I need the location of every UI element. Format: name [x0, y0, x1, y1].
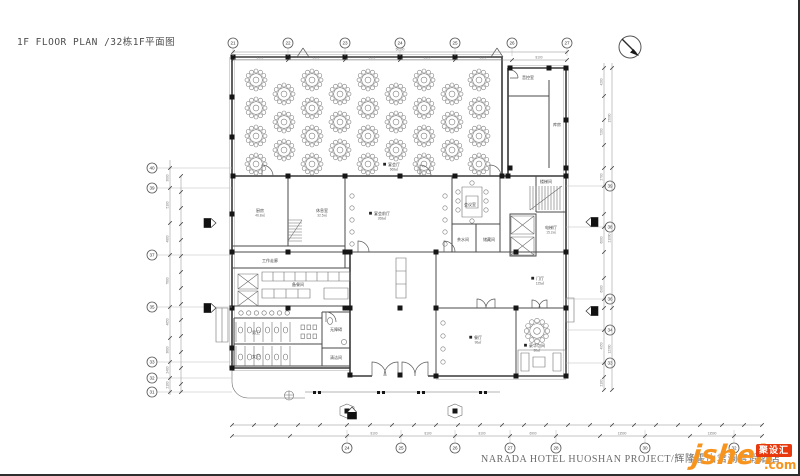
grid-bubble: 32: [147, 373, 232, 383]
svg-text:楼梯间: 楼梯间: [540, 178, 552, 184]
svg-text:668㎡: 668㎡: [390, 167, 399, 172]
section-marker: [586, 218, 598, 227]
chair: [470, 181, 474, 185]
banquet-table: [413, 69, 435, 91]
section-marker: [586, 307, 598, 316]
column: [230, 250, 235, 255]
column: [508, 66, 513, 71]
column: [230, 95, 235, 100]
column: [348, 306, 353, 311]
column: [286, 174, 291, 179]
chair: [443, 230, 447, 234]
banquet-tables-layer: [245, 69, 550, 344]
room-label: 厨房46.8㎡: [255, 207, 265, 218]
svg-text:餐厅: 餐厅: [474, 334, 482, 340]
grid-bubble: 33: [566, 358, 615, 368]
svg-text:2700: 2700: [600, 173, 604, 180]
svg-text:宴会前厅: 宴会前厅: [374, 210, 390, 216]
room-label: 餐厅96㎡: [469, 334, 482, 345]
banquet-table: [413, 125, 435, 147]
chair: [441, 347, 445, 351]
grid-bubble: 25: [396, 430, 406, 453]
banquet-table: [273, 83, 295, 105]
column: [434, 250, 439, 255]
grid-bubble: 21: [228, 38, 238, 56]
room-labels-layer: 宴会厅668㎡音控室库房厨房46.8㎡休息室32.5㎡宴会前厅268㎡会议室茶水…: [252, 74, 561, 360]
svg-text:茶水间: 茶水间: [457, 236, 469, 242]
banquet-table: [273, 111, 295, 133]
svg-text:5100: 5100: [166, 201, 170, 208]
room-label: 楼梯间: [540, 178, 552, 184]
column: [398, 174, 403, 179]
svg-text:女卫: 女卫: [252, 353, 260, 359]
banquet-table: [413, 153, 435, 175]
svg-text:268㎡: 268㎡: [378, 216, 387, 221]
svg-text:3600: 3600: [166, 346, 170, 353]
chair: [350, 242, 354, 246]
column: [398, 306, 403, 311]
svg-text:21: 21: [230, 41, 236, 46]
banquet-table: [441, 83, 463, 105]
svg-text:2100: 2100: [166, 381, 170, 388]
svg-text:4650: 4650: [166, 318, 170, 325]
room-label: 豪华包间80㎡: [524, 342, 545, 353]
fixtures-layer: [216, 186, 574, 418]
svg-text:27: 27: [564, 41, 570, 46]
column: [230, 366, 235, 371]
section-marker: [204, 304, 216, 313]
dimension-string: 81008100810069001350013500: [230, 432, 764, 438]
terrace-posts-layer: [313, 391, 487, 414]
room-label: 女卫: [252, 353, 260, 359]
svg-text:46.8㎡: 46.8㎡: [255, 213, 265, 218]
banquet-table: [357, 69, 379, 91]
banquet-table: [357, 153, 379, 175]
banquet-table: [245, 97, 267, 119]
svg-text:32.5㎡: 32.5㎡: [317, 213, 327, 218]
grid-bubble: 37: [147, 250, 232, 260]
chair: [441, 360, 445, 364]
column: [231, 174, 236, 179]
svg-text:3000: 3000: [166, 174, 170, 181]
column: [434, 306, 439, 311]
grid-bubble: 23: [340, 38, 350, 56]
banquet-table: [357, 125, 379, 147]
svg-text:豪华包间: 豪华包间: [529, 342, 545, 348]
room-label: 门厅125㎡: [531, 275, 545, 286]
svg-text:2400: 2400: [166, 366, 170, 373]
banquet-table: [413, 97, 435, 119]
banquet-table: [301, 69, 323, 91]
watermark-tld: .com: [764, 458, 796, 472]
svg-text:37: 37: [149, 253, 155, 258]
room-label: 茶水间: [457, 236, 469, 242]
column: [514, 250, 519, 255]
svg-text:32: 32: [149, 376, 155, 381]
chair: [456, 208, 460, 212]
column: [500, 174, 505, 179]
svg-text:22: 22: [285, 41, 291, 46]
grid-bubble: 33: [147, 357, 232, 367]
svg-text:26: 26: [452, 446, 458, 451]
room-label: 备餐间: [292, 281, 304, 287]
column: [230, 346, 235, 351]
svg-text:厨房: 厨房: [256, 207, 264, 213]
grid-bubble: 39: [147, 183, 232, 193]
chair: [443, 194, 447, 198]
column: [564, 306, 569, 311]
svg-text:7200: 7200: [600, 128, 604, 135]
dimension-string: [179, 174, 183, 394]
svg-text:8100: 8100: [478, 432, 485, 436]
svg-text:7800: 7800: [166, 277, 170, 284]
column: [343, 306, 348, 311]
banquet-table: [468, 153, 490, 175]
svg-text:电梯厅: 电梯厅: [545, 224, 557, 230]
banquet-table: [385, 139, 407, 161]
banquet-table: [245, 125, 267, 147]
grid-bubble: 35: [147, 302, 232, 312]
grid-bubble: 26: [507, 38, 517, 56]
dimension-string: 30005100480078004650360024002100: [166, 160, 172, 395]
svg-text:21000: 21000: [608, 233, 612, 242]
svg-text:125㎡: 125㎡: [536, 281, 545, 286]
room-label: 宴会前厅268㎡: [369, 210, 390, 221]
svg-text:35: 35: [149, 305, 155, 310]
grid-bubble: 34: [566, 325, 615, 335]
room-label: 储藏间: [483, 236, 495, 242]
chair: [484, 190, 488, 194]
column: [564, 118, 569, 123]
banquet-table: [357, 97, 379, 119]
svg-text:15000: 15000: [608, 113, 612, 122]
room-label: 男卫: [252, 330, 260, 335]
chairs-layer: [350, 181, 488, 364]
svg-text:50100: 50100: [396, 48, 405, 52]
svg-text:8100: 8100: [370, 432, 377, 436]
banquet-table: [385, 83, 407, 105]
room-label: 清洁间: [330, 354, 342, 360]
svg-text:26: 26: [509, 41, 515, 46]
svg-text:6900: 6900: [600, 285, 604, 292]
svg-text:8100: 8100: [368, 56, 375, 60]
banquet-table: [245, 69, 267, 91]
grid-bubble: 24: [342, 430, 352, 453]
svg-text:96㎡: 96㎡: [475, 340, 483, 345]
column: [343, 250, 348, 255]
dimension-string: [230, 423, 764, 427]
svg-text:储藏间: 储藏间: [483, 236, 495, 242]
floor-plan-drawing: 2122232425262724252627283032403937353332…: [0, 0, 800, 476]
grid-bubble: 31: [147, 387, 232, 397]
banquet-table: [468, 97, 490, 119]
chair: [484, 199, 488, 203]
svg-text:工作走廊: 工作走廊: [262, 257, 278, 263]
column: [506, 174, 511, 179]
svg-text:25: 25: [398, 446, 404, 451]
chair: [456, 190, 460, 194]
column: [286, 250, 291, 255]
room-label: 休息室32.5㎡: [316, 207, 328, 218]
column: [564, 66, 569, 71]
banquet-table: [301, 97, 323, 119]
chair: [484, 208, 488, 212]
svg-text:8100: 8100: [479, 56, 486, 60]
svg-text:6000: 6000: [600, 236, 604, 243]
grid-bubble: 27: [562, 38, 572, 56]
grid-bubble: 25: [450, 38, 460, 56]
svg-text:12300: 12300: [608, 344, 612, 353]
banquet-table: [329, 139, 351, 161]
north-arrow-icon: [619, 36, 641, 58]
room-label: 音控室: [522, 74, 534, 80]
column: [564, 174, 569, 179]
banquet-table: [441, 111, 463, 133]
chair: [470, 219, 474, 223]
svg-text:备餐间: 备餐间: [292, 281, 304, 287]
svg-text:8100: 8100: [312, 56, 319, 60]
room-label: 工作走廊: [262, 257, 278, 263]
private-dining-table: [524, 318, 549, 343]
banquet-table: [329, 111, 351, 133]
svg-text:31: 31: [149, 390, 155, 395]
banquet-table: [329, 83, 351, 105]
svg-text:8100: 8100: [424, 432, 431, 436]
drawing-sheet: 1F FLOOR PLAN /32栋1F平面图: [0, 0, 800, 476]
svg-text:24: 24: [397, 41, 403, 46]
column: [434, 374, 439, 379]
svg-text:13500: 13500: [708, 432, 717, 436]
banquet-table: [273, 139, 295, 161]
chair: [350, 206, 354, 210]
grid-bubble: 26: [450, 430, 460, 453]
banquet-table: [301, 125, 323, 147]
svg-text:39: 39: [149, 186, 155, 191]
grid-bubble: 39: [566, 181, 615, 191]
column: [547, 66, 552, 71]
chair: [456, 199, 460, 203]
svg-text:清洁间: 清洁间: [330, 354, 342, 360]
banquet-table: [245, 153, 267, 175]
column: [508, 166, 513, 171]
grid-bubble: 40: [147, 163, 232, 173]
column: [514, 306, 519, 311]
svg-text:会议室: 会议室: [464, 201, 476, 207]
svg-text:门厅: 门厅: [536, 275, 544, 281]
banquet-table: [385, 111, 407, 133]
column: [286, 306, 291, 311]
svg-text:无障碍: 无障碍: [330, 326, 342, 332]
chair: [350, 194, 354, 198]
svg-text:4800: 4800: [166, 235, 170, 242]
watermark-badge: 聚设汇: [756, 444, 792, 457]
room-label: 会议室: [464, 201, 476, 207]
svg-text:23: 23: [342, 41, 348, 46]
svg-text:2100: 2100: [600, 379, 604, 386]
svg-text:15.2㎡: 15.2㎡: [546, 230, 556, 235]
room-label: 电梯厅15.2㎡: [545, 224, 557, 235]
chair: [441, 321, 445, 325]
chair: [441, 334, 445, 338]
column: [564, 374, 569, 379]
room-label: 无障碍: [330, 326, 342, 332]
svg-text:13500: 13500: [618, 432, 627, 436]
column: [348, 373, 353, 378]
svg-text:库房: 库房: [553, 121, 561, 127]
column: [453, 174, 458, 179]
chair: [350, 218, 354, 222]
column: [230, 212, 235, 217]
chair: [350, 230, 354, 234]
grid-bubble: 22: [283, 38, 293, 56]
svg-text:男卫: 男卫: [252, 330, 260, 335]
column: [514, 374, 519, 379]
banquet-table: [468, 69, 490, 91]
column: [564, 250, 569, 255]
svg-text:6900: 6900: [529, 432, 536, 436]
room-label: 宴会厅668㎡: [383, 161, 400, 172]
chair: [443, 242, 447, 246]
section-marker: [204, 219, 216, 228]
chair: [443, 218, 447, 222]
svg-text:8100: 8100: [256, 56, 263, 60]
banquet-table: [468, 125, 490, 147]
svg-text:8100: 8100: [535, 56, 542, 60]
svg-text:8100: 8100: [423, 56, 430, 60]
svg-text:25: 25: [452, 41, 458, 46]
svg-text:4200: 4200: [600, 78, 604, 85]
grid-bubble: 36: [566, 294, 615, 304]
column: [398, 373, 403, 378]
column: [230, 135, 235, 140]
svg-text:4950: 4950: [600, 342, 604, 349]
svg-text:宴会厅: 宴会厅: [388, 161, 400, 167]
column: [230, 306, 235, 311]
column: [343, 174, 348, 179]
svg-text:80㎡: 80㎡: [534, 348, 542, 353]
banquet-table: [301, 153, 323, 175]
svg-text:休息室: 休息室: [316, 207, 328, 213]
column: [564, 166, 569, 171]
svg-text:24: 24: [344, 446, 350, 451]
room-label: 库房: [553, 121, 561, 127]
column: [348, 250, 353, 255]
banquet-table: [441, 139, 463, 161]
svg-text:40: 40: [149, 166, 155, 171]
svg-text:音控室: 音控室: [522, 74, 534, 80]
svg-text:33: 33: [149, 360, 155, 365]
chair: [443, 206, 447, 210]
